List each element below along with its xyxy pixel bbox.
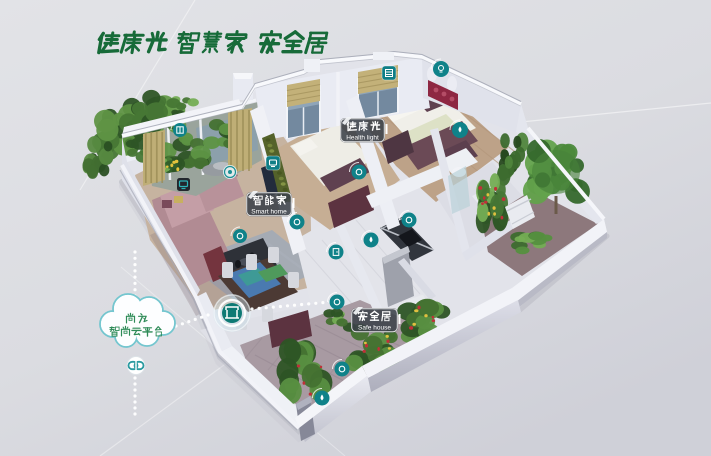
svg-text:Health light: Health light <box>346 135 379 142</box>
svg-text:Safe house: Safe house <box>358 325 391 332</box>
svg-text:Smart home: Smart home <box>251 209 287 216</box>
